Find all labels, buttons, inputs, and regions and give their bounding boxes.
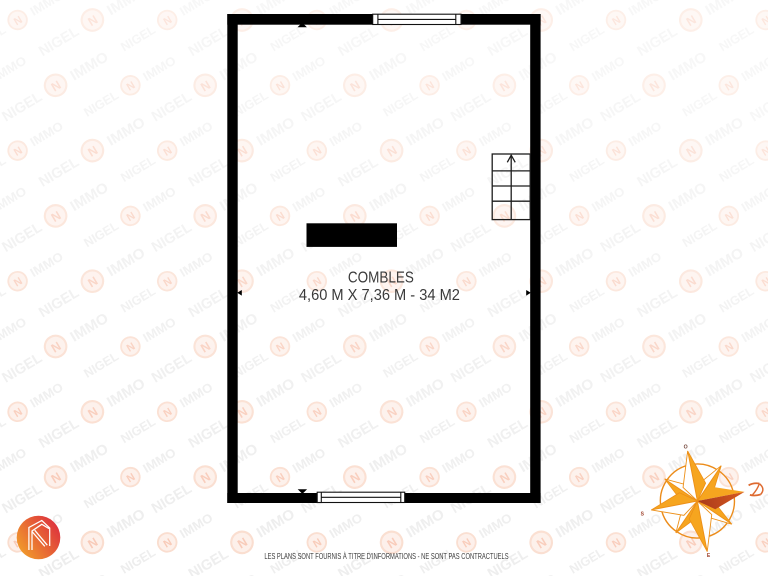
svg-text:NIGEL: NIGEL [149, 481, 195, 517]
svg-text:IMMO: IMMO [217, 441, 261, 476]
svg-text:NIGEL: NIGEL [268, 153, 308, 185]
svg-text:NIGEL: NIGEL [186, 546, 232, 576]
svg-text:NIGEL: NIGEL [268, 23, 308, 55]
svg-text:NIGEL: NIGEL [0, 350, 45, 386]
svg-text:NIGEL: NIGEL [717, 414, 757, 446]
svg-text:IMMO: IMMO [739, 53, 768, 84]
svg-text:IMMO: IMMO [589, 53, 627, 84]
svg-text:NIGEL: NIGEL [0, 220, 45, 256]
svg-text:IMMO: IMMO [477, 119, 515, 150]
svg-text:IMMO: IMMO [477, 249, 515, 280]
svg-text:NIGEL: NIGEL [485, 285, 531, 321]
svg-text:IMMO: IMMO [440, 184, 478, 215]
svg-text:IMMO: IMMO [367, 310, 411, 345]
svg-text:NIGEL: NIGEL [118, 23, 158, 55]
svg-text:NIGEL: NIGEL [635, 415, 681, 451]
svg-text:NIGEL: NIGEL [680, 88, 720, 120]
svg-text:NIGEL: NIGEL [717, 153, 757, 185]
svg-text:IMMO: IMMO [367, 49, 411, 84]
svg-text:NIGEL: NIGEL [0, 414, 9, 446]
svg-text:NIGEL: NIGEL [748, 350, 768, 386]
svg-text:IMMO: IMMO [440, 315, 478, 346]
svg-text:IMMO: IMMO [553, 115, 597, 150]
svg-text:IMMO: IMMO [177, 0, 215, 19]
svg-text:IMMO: IMMO [626, 249, 664, 280]
svg-text:IMMO: IMMO [28, 380, 66, 411]
svg-text:NIGEL: NIGEL [186, 415, 232, 451]
svg-text:IMMO: IMMO [703, 376, 747, 411]
svg-text:NIGEL: NIGEL [635, 546, 681, 576]
svg-text:NIGEL: NIGEL [598, 481, 644, 517]
svg-text:IMMO: IMMO [626, 380, 664, 411]
svg-text:NIGEL: NIGEL [635, 154, 681, 190]
svg-text:IMMO: IMMO [666, 310, 710, 345]
svg-text:NIGEL: NIGEL [268, 414, 308, 446]
svg-text:NIGEL: NIGEL [118, 153, 158, 185]
svg-text:NIGEL: NIGEL [0, 545, 9, 576]
svg-text:IMMO: IMMO [739, 184, 768, 215]
svg-text:IMMO: IMMO [104, 115, 148, 150]
svg-text:IMMO: IMMO [440, 53, 478, 84]
svg-text:NIGEL: NIGEL [36, 154, 82, 190]
svg-text:IMMO: IMMO [104, 506, 148, 541]
svg-text:NIGEL: NIGEL [0, 284, 9, 316]
svg-text:IMMO: IMMO [404, 506, 448, 541]
svg-text:IMMO: IMMO [477, 380, 515, 411]
svg-text:IMMO: IMMO [68, 310, 112, 345]
svg-text:IMMO: IMMO [68, 441, 112, 476]
svg-text:NIGEL: NIGEL [82, 480, 122, 512]
svg-text:NIGEL: NIGEL [149, 220, 195, 256]
svg-text:IMMO: IMMO [290, 184, 328, 215]
svg-text:IMMO: IMMO [404, 376, 448, 411]
svg-text:IMMO: IMMO [177, 380, 215, 411]
svg-text:NIGEL: NIGEL [0, 481, 45, 517]
svg-text:IMMO: IMMO [177, 119, 215, 150]
svg-text:IMMO: IMMO [68, 49, 112, 84]
svg-text:IMMO: IMMO [290, 315, 328, 346]
svg-text:NIGEL: NIGEL [336, 415, 382, 451]
svg-text:IMMO: IMMO [739, 315, 768, 346]
svg-text:IMMO: IMMO [177, 511, 215, 542]
svg-text:NIGEL: NIGEL [186, 285, 232, 321]
svg-text:NIGEL: NIGEL [567, 153, 607, 185]
svg-text:IMMO: IMMO [626, 0, 664, 19]
svg-text:IMMO: IMMO [141, 315, 179, 346]
svg-text:NIGEL: NIGEL [0, 153, 9, 185]
svg-text:IMMO: IMMO [104, 245, 148, 280]
svg-text:IMMO: IMMO [327, 380, 365, 411]
svg-text:IMMO: IMMO [739, 445, 768, 476]
svg-text:NIGEL: NIGEL [418, 23, 458, 55]
svg-text:NIGEL: NIGEL [149, 89, 195, 125]
svg-text:IMMO: IMMO [553, 376, 597, 411]
svg-text:NIGEL: NIGEL [485, 24, 531, 60]
svg-text:NIGEL: NIGEL [567, 414, 607, 446]
svg-text:IMMO: IMMO [666, 180, 710, 215]
svg-text:NIGEL: NIGEL [598, 89, 644, 125]
svg-text:NIGEL: NIGEL [598, 350, 644, 386]
svg-text:LES PLANS SONT FOURNIS À TITRE: LES PLANS SONT FOURNIS À TITRE D'INFORMA… [264, 551, 509, 561]
svg-text:NIGEL: NIGEL [418, 414, 458, 446]
svg-text:IMMO: IMMO [367, 441, 411, 476]
svg-text:4,60 M X 7,36 M - 34 M2: 4,60 M X 7,36 M - 34 M2 [299, 287, 460, 304]
svg-text:NIGEL: NIGEL [36, 24, 82, 60]
svg-text:NIGEL: NIGEL [82, 349, 122, 381]
svg-text:IMMO: IMMO [0, 53, 29, 84]
svg-text:IMMO: IMMO [28, 0, 66, 19]
svg-text:NIGEL: NIGEL [36, 285, 82, 321]
svg-text:NIGEL: NIGEL [186, 24, 232, 60]
svg-text:IMMO: IMMO [68, 180, 112, 215]
svg-text:IMMO: IMMO [254, 115, 298, 150]
svg-text:IMMO: IMMO [666, 572, 710, 576]
svg-text:NIGEL: NIGEL [567, 284, 607, 316]
svg-text:IMMO: IMMO [0, 184, 29, 215]
svg-text:NIGEL: NIGEL [485, 415, 531, 451]
svg-text:NIGEL: NIGEL [567, 23, 607, 55]
svg-text:IMMO: IMMO [0, 315, 29, 346]
svg-text:NIGEL: NIGEL [680, 349, 720, 381]
svg-text:IMMO: IMMO [254, 506, 298, 541]
svg-text:S: S [641, 511, 645, 517]
svg-text:NIGEL: NIGEL [748, 220, 768, 256]
svg-text:NIGEL: NIGEL [149, 350, 195, 386]
svg-text:IMMO: IMMO [141, 445, 179, 476]
svg-text:IMMO: IMMO [589, 184, 627, 215]
svg-text:COMBLES: COMBLES [348, 270, 414, 287]
svg-text:IMMO: IMMO [104, 0, 148, 19]
svg-text:IMMO: IMMO [553, 245, 597, 280]
svg-text:IMMO: IMMO [553, 506, 597, 541]
svg-text:IMMO: IMMO [68, 572, 112, 576]
svg-text:NIGEL: NIGEL [448, 350, 494, 386]
svg-text:IMMO: IMMO [703, 0, 747, 19]
svg-text:NIGEL: NIGEL [336, 24, 382, 60]
svg-text:NIGEL: NIGEL [336, 154, 382, 190]
svg-text:NIGEL: NIGEL [680, 218, 720, 250]
svg-text:NIGEL: NIGEL [118, 414, 158, 446]
svg-text:NIGEL: NIGEL [381, 349, 421, 381]
svg-text:IMMO: IMMO [327, 119, 365, 150]
svg-text:IMMO: IMMO [290, 53, 328, 84]
svg-text:IMMO: IMMO [177, 249, 215, 280]
svg-text:IMMO: IMMO [104, 376, 148, 411]
svg-text:NIGEL: NIGEL [36, 415, 82, 451]
svg-text:NIGEL: NIGEL [186, 154, 232, 190]
svg-text:NIGEL: NIGEL [448, 89, 494, 125]
svg-text:IMMO: IMMO [141, 53, 179, 84]
svg-text:IMMO: IMMO [217, 572, 261, 576]
svg-text:IMMO: IMMO [626, 511, 664, 542]
svg-text:IMMO: IMMO [626, 119, 664, 150]
svg-text:NIGEL: NIGEL [82, 88, 122, 120]
svg-text:NIGEL: NIGEL [748, 89, 768, 125]
svg-text:E: E [707, 553, 711, 559]
svg-text:IMMO: IMMO [589, 445, 627, 476]
svg-text:NIGEL: NIGEL [82, 218, 122, 250]
svg-text:IMMO: IMMO [367, 180, 411, 215]
svg-text:IMMO: IMMO [28, 119, 66, 150]
svg-text:IMMO: IMMO [440, 445, 478, 476]
svg-text:NIGEL: NIGEL [635, 24, 681, 60]
svg-text:NIGEL: NIGEL [635, 285, 681, 321]
svg-text:NIGEL: NIGEL [381, 88, 421, 120]
svg-text:IMMO: IMMO [553, 0, 597, 19]
svg-text:NIGEL: NIGEL [299, 89, 345, 125]
svg-text:IMMO: IMMO [703, 245, 747, 280]
svg-text:NIGEL: NIGEL [717, 284, 757, 316]
svg-text:IMMO: IMMO [703, 115, 747, 150]
svg-text:NIGEL: NIGEL [448, 220, 494, 256]
svg-text:NIGEL: NIGEL [299, 350, 345, 386]
svg-text:IMMO: IMMO [217, 180, 261, 215]
svg-text:NIGEL: NIGEL [0, 23, 9, 55]
svg-text:IMMO: IMMO [666, 49, 710, 84]
svg-text:NIGEL: NIGEL [418, 153, 458, 185]
svg-text:IMMO: IMMO [589, 315, 627, 346]
svg-text:NIGEL: NIGEL [118, 545, 158, 576]
svg-text:IMMO: IMMO [254, 245, 298, 280]
svg-text:NIGEL: NIGEL [598, 220, 644, 256]
svg-text:NIGEL: NIGEL [567, 545, 607, 576]
svg-text:IMMO: IMMO [290, 445, 328, 476]
svg-text:IMMO: IMMO [327, 511, 365, 542]
svg-text:IMMO: IMMO [0, 445, 29, 476]
svg-text:IMMO: IMMO [141, 184, 179, 215]
svg-text:IMMO: IMMO [516, 572, 560, 576]
svg-text:IMMO: IMMO [217, 49, 261, 84]
svg-text:NIGEL: NIGEL [0, 89, 45, 125]
svg-text:IMMO: IMMO [254, 376, 298, 411]
svg-text:IMMO: IMMO [477, 511, 515, 542]
svg-text:NIGEL: NIGEL [717, 545, 757, 576]
svg-text:NIGEL: NIGEL [118, 284, 158, 316]
svg-text:IMMO: IMMO [217, 310, 261, 345]
svg-text:IMMO: IMMO [28, 249, 66, 280]
svg-text:IMMO: IMMO [367, 572, 411, 576]
svg-text:NIGEL: NIGEL [717, 23, 757, 55]
svg-text:IMMO: IMMO [404, 115, 448, 150]
svg-text:O: O [684, 445, 688, 451]
